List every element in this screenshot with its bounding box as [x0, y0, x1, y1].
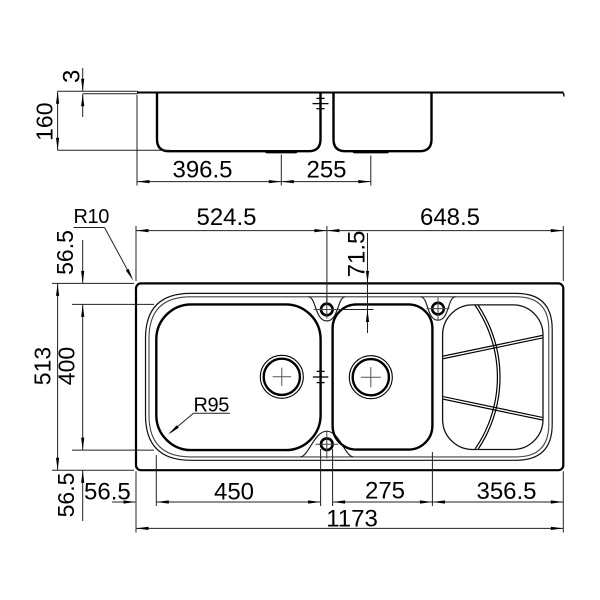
- svg-text:3: 3: [59, 70, 86, 83]
- svg-text:56.5: 56.5: [53, 473, 79, 518]
- svg-text:513: 513: [30, 347, 56, 385]
- svg-text:396.5: 396.5: [172, 156, 232, 183]
- svg-text:275: 275: [365, 478, 405, 505]
- svg-text:356.5: 356.5: [476, 478, 536, 505]
- svg-text:1173: 1173: [326, 505, 378, 532]
- svg-text:R10: R10: [74, 206, 110, 228]
- svg-text:71.5: 71.5: [344, 231, 371, 278]
- svg-text:R95: R95: [194, 395, 230, 417]
- svg-text:524.5: 524.5: [196, 204, 256, 231]
- svg-text:56.5: 56.5: [52, 230, 78, 275]
- svg-text:400: 400: [54, 347, 80, 385]
- svg-text:450: 450: [214, 479, 254, 506]
- svg-text:56.5: 56.5: [84, 479, 131, 506]
- svg-text:255: 255: [306, 156, 346, 183]
- svg-text:160: 160: [31, 103, 57, 141]
- svg-text:648.5: 648.5: [420, 204, 480, 231]
